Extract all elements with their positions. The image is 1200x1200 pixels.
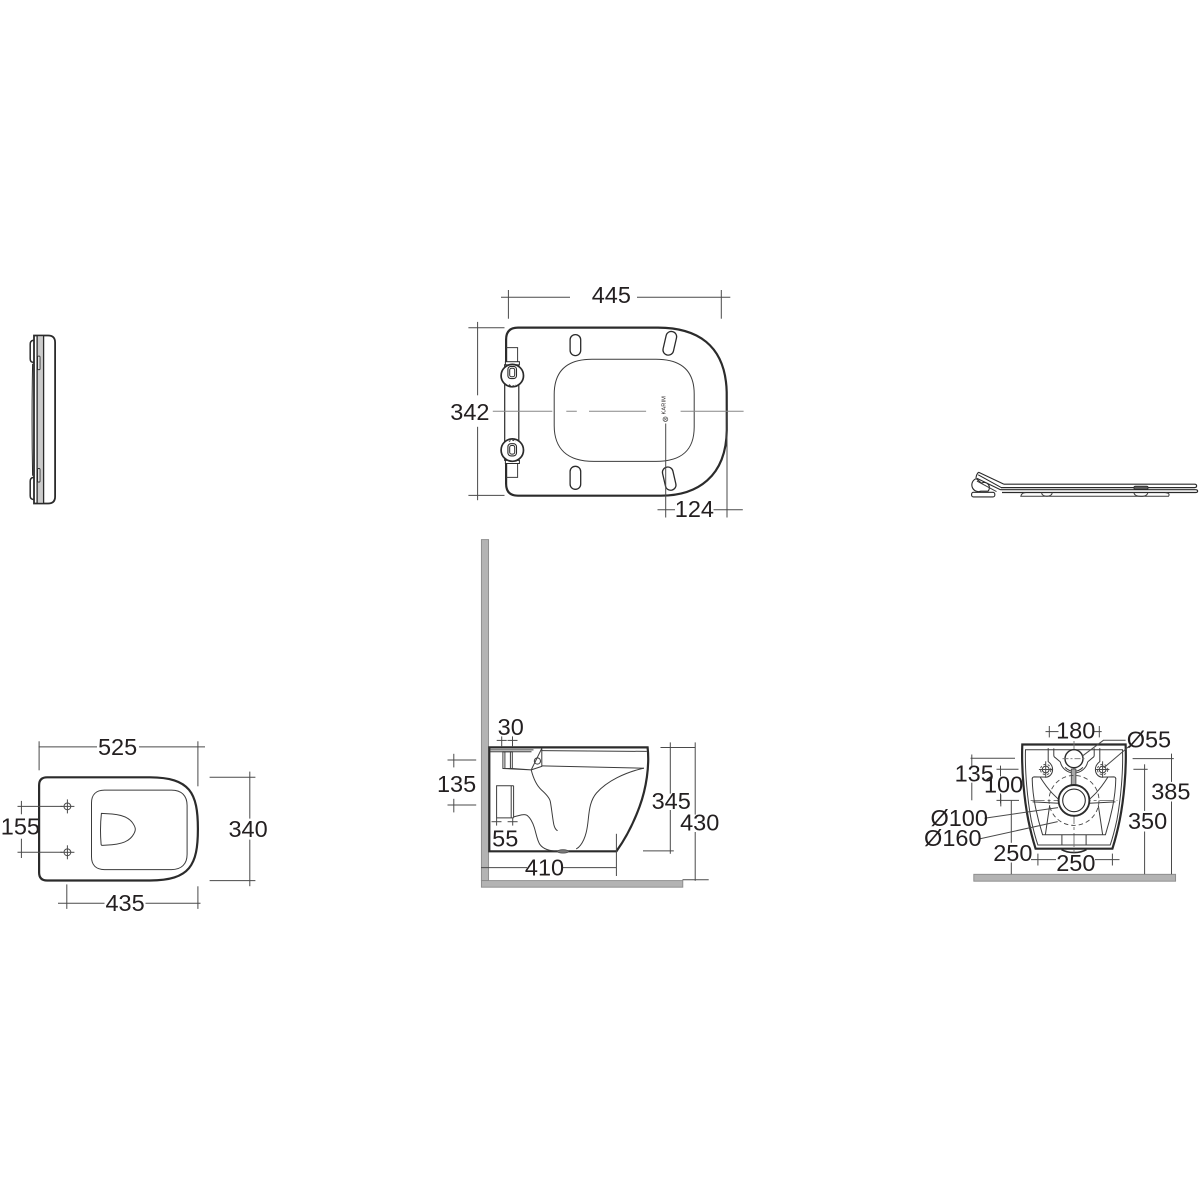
svg-text:410: 410: [525, 855, 564, 881]
svg-text:Ø55: Ø55: [1127, 726, 1171, 752]
svg-text:Ø160: Ø160: [924, 825, 982, 851]
svg-text:430: 430: [680, 810, 719, 836]
svg-text:155: 155: [1, 813, 40, 839]
svg-text:340: 340: [228, 816, 267, 842]
svg-text:100: 100: [984, 772, 1023, 798]
svg-text:385: 385: [1151, 778, 1190, 804]
svg-text:250: 250: [993, 840, 1032, 866]
svg-text:445: 445: [592, 282, 631, 308]
svg-text:350: 350: [1128, 808, 1167, 834]
svg-text:180: 180: [1056, 717, 1095, 743]
svg-text:124: 124: [675, 496, 714, 522]
svg-text:KARIM: KARIM: [661, 396, 667, 415]
svg-text:30: 30: [498, 714, 524, 740]
svg-text:135: 135: [437, 771, 476, 797]
svg-text:250: 250: [1056, 850, 1095, 876]
svg-text:55: 55: [492, 826, 518, 852]
svg-text:525: 525: [98, 734, 137, 760]
svg-text:342: 342: [450, 399, 489, 425]
svg-text:435: 435: [105, 890, 144, 916]
